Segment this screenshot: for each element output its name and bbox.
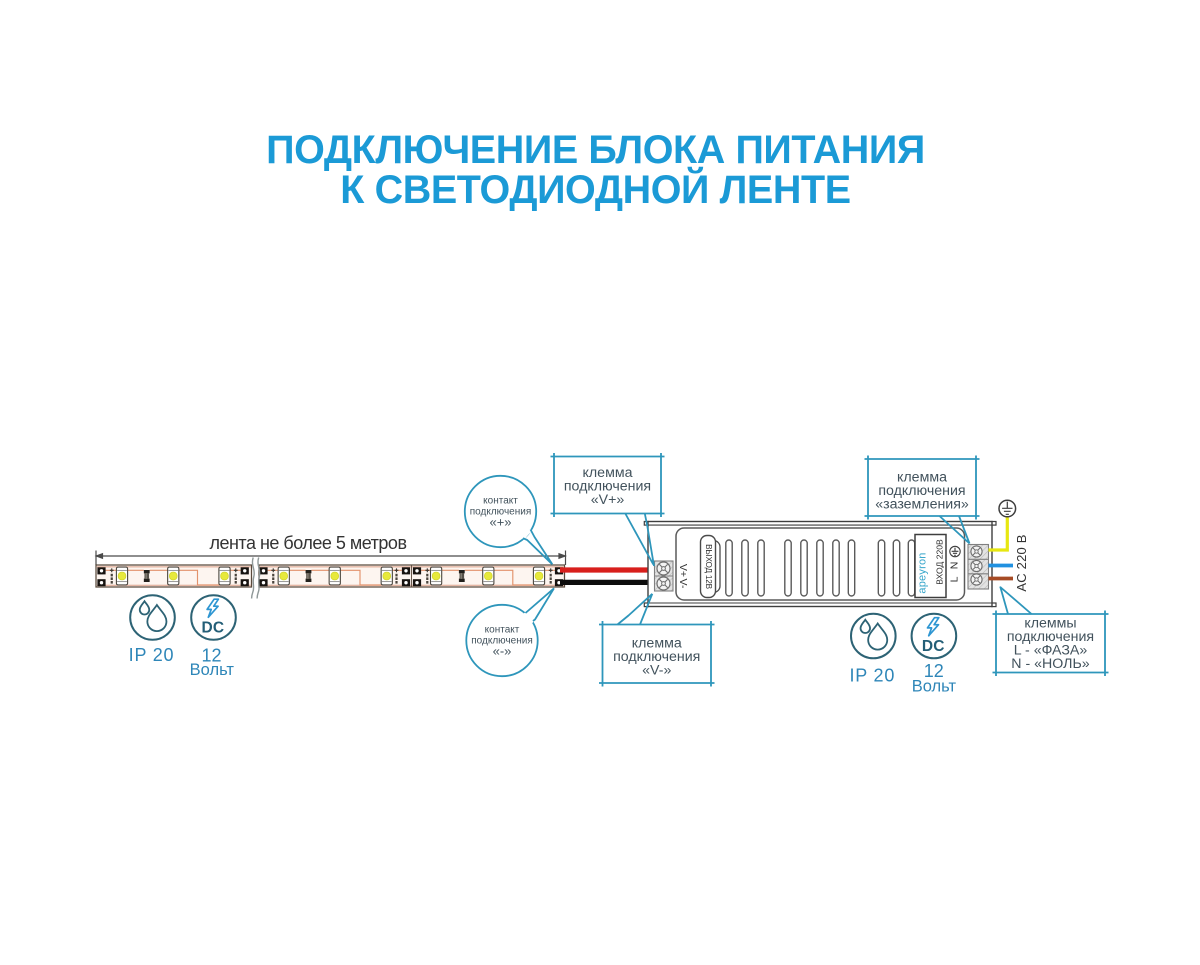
svg-text:ПОДКЛЮЧЕНИЕ БЛОКА ПИТАНИЯ: ПОДКЛЮЧЕНИЕ БЛОКА ПИТАНИЯ [266, 128, 925, 172]
svg-text:Вольт: Вольт [912, 678, 957, 696]
svg-text:«V-»: «V-» [642, 663, 671, 679]
svg-text:V-: V- [677, 579, 689, 589]
svg-text:Вольт: Вольт [190, 661, 235, 679]
svg-text:К СВЕТОДИОДНОЙ ЛЕНТЕ: К СВЕТОДИОДНОЙ ЛЕНТЕ [340, 167, 850, 212]
svg-text:N: N [949, 562, 961, 570]
svg-text:ВХОД 220В: ВХОД 220В [935, 539, 945, 585]
svg-text:лента не более 5 метров: лента не более 5 метров [209, 533, 406, 553]
svg-text:IP 20: IP 20 [129, 645, 175, 665]
svg-text:контакт: контакт [485, 625, 520, 636]
svg-text:«+»: «+» [489, 515, 511, 530]
svg-text:L: L [949, 576, 961, 582]
svg-text:IP 20: IP 20 [849, 666, 895, 686]
svg-text:AC 220 В: AC 220 В [1014, 534, 1029, 591]
svg-text:apeyron: apeyron [917, 552, 929, 593]
svg-text:N - «НОЛЬ»: N - «НОЛЬ» [1011, 656, 1089, 672]
svg-text:«V+»: «V+» [591, 492, 625, 508]
svg-text:«заземления»: «заземления» [875, 497, 969, 513]
svg-text:ВЫХОД 12В: ВЫХОД 12В [704, 544, 713, 589]
svg-text:«-»: «-» [493, 644, 512, 659]
svg-text:V+: V+ [677, 564, 689, 577]
svg-text:контакт: контакт [483, 496, 518, 507]
